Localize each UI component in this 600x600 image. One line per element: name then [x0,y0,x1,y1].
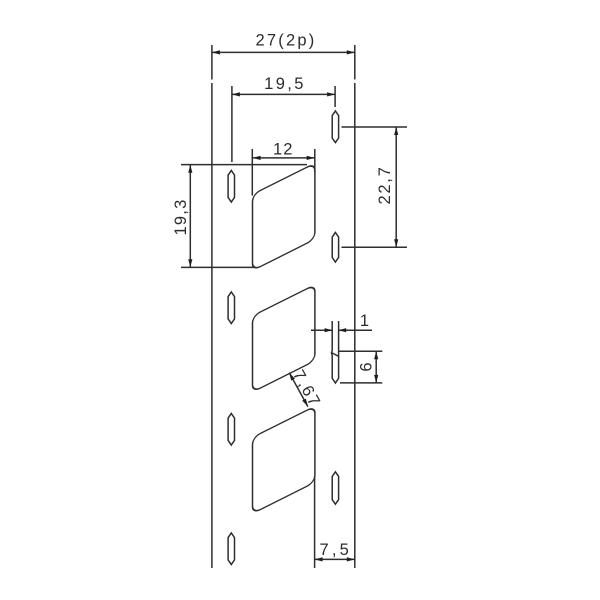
svg-text:22,7: 22,7 [376,166,394,205]
svg-text:6: 6 [358,362,376,371]
svg-text:19,5: 19,5 [264,75,306,93]
svg-text:12: 12 [273,140,293,158]
svg-text:7,5: 7,5 [320,541,353,559]
svg-text:27(2p): 27(2p) [256,31,317,49]
svg-text:1: 1 [360,312,369,330]
svg-text:19,3: 19,3 [172,199,190,236]
